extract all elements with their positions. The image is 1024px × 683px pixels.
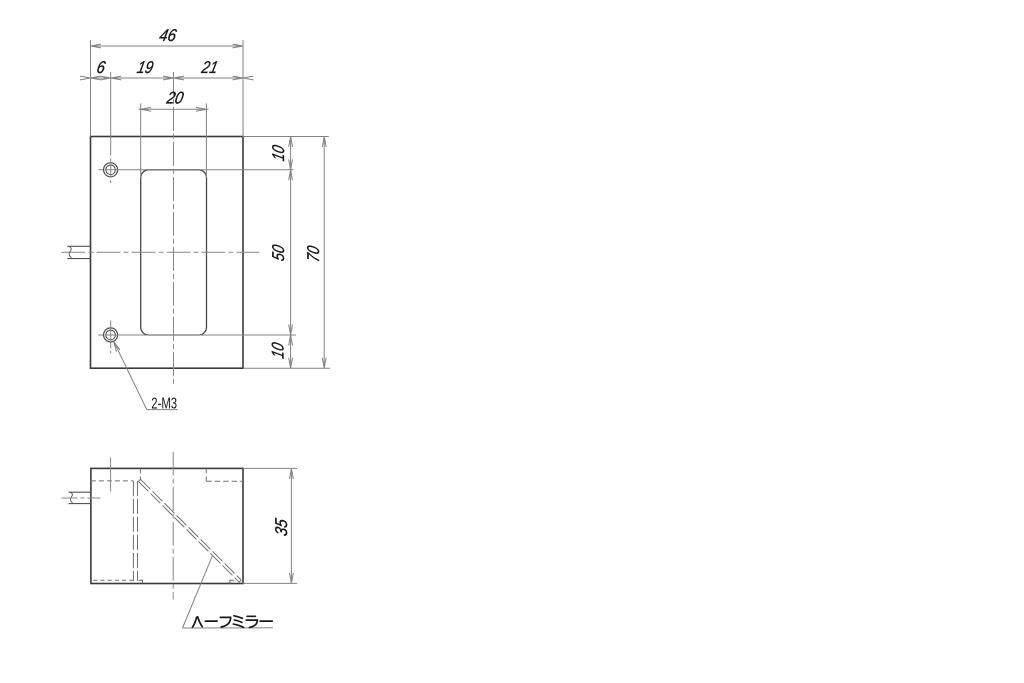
svg-text:2-M3: 2-M3 xyxy=(151,395,177,412)
